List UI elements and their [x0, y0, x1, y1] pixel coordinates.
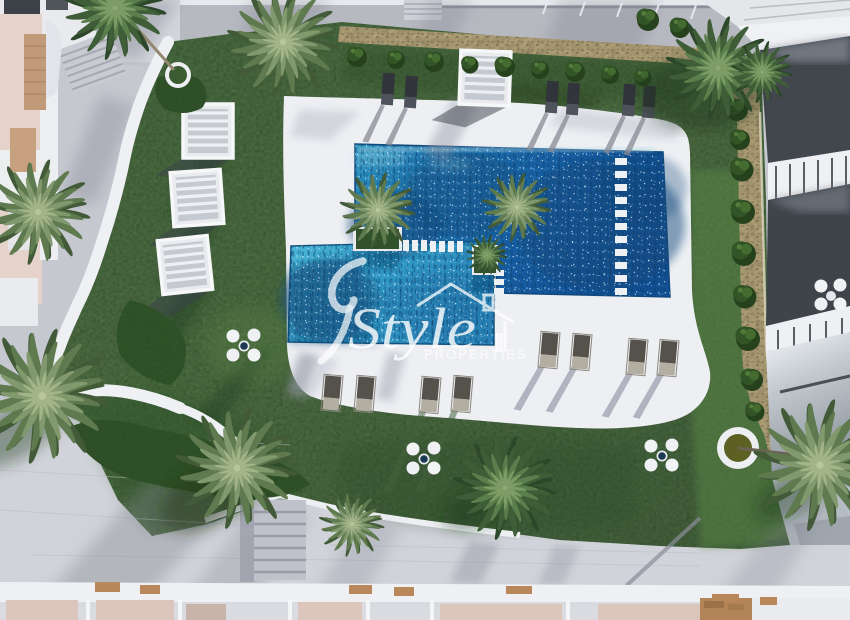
svg-text:PROPERTIES: PROPERTIES	[424, 347, 528, 362]
